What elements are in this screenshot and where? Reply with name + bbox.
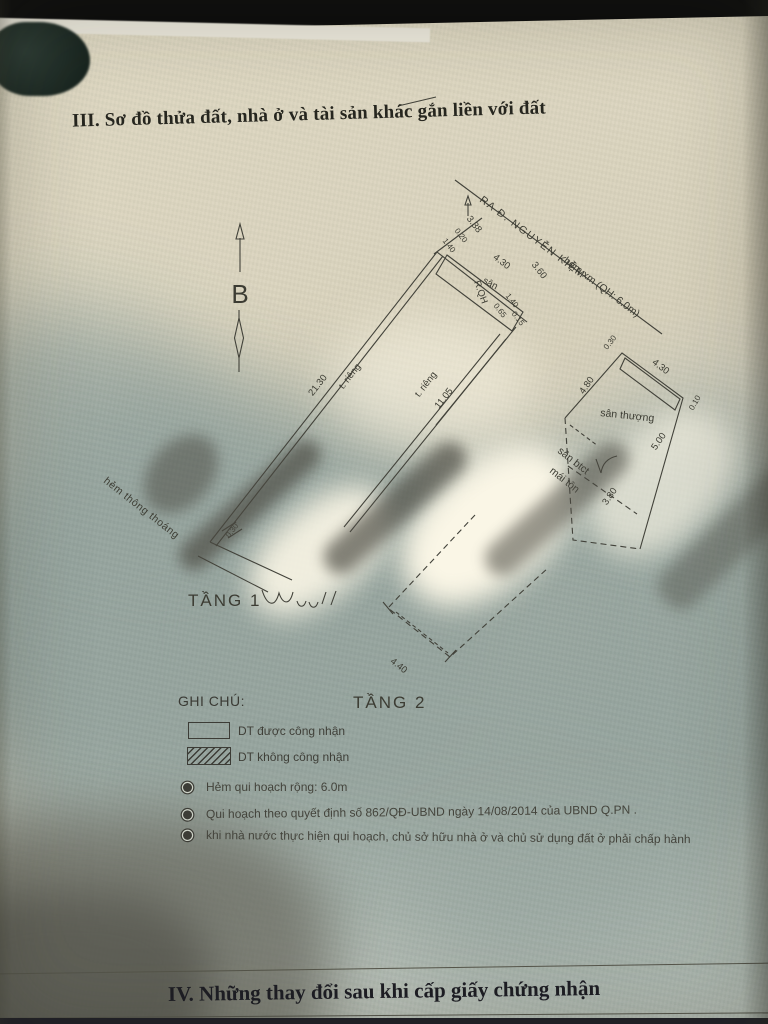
photo-bottom-edge [0,1018,768,1024]
right-side-note: t. riêng [413,370,440,400]
note-row: Hẻm qui hoạch rộng: 6.0m [183,780,347,794]
legend-label-recognized: DT được công nhận [238,724,345,738]
yard-width-dim: 4.30 [491,252,512,272]
roof-dim-top-right: 0.10 [687,393,703,411]
north-label: B [231,279,248,309]
floor2-name: TẦNG 2 [353,693,426,712]
frontage-dim-1: 1.40 [441,237,458,255]
photo-right-edge [742,0,768,1024]
legend-label-unrecognized: DT không công nhận [238,750,349,764]
photographed-land-certificate-page: B RA Đ. NGUYỄN KIỆM hẻm xm (QH: 6.0m) [0,0,768,1024]
legend-swatch-unrecognized [187,747,231,765]
left-side-note: t. riêng [337,362,364,392]
alley-label: hẻm xm (QH: 6.0m) [561,255,642,320]
bullet-icon [183,810,192,819]
note-text: Hẻm qui hoạch rộng: 6.0m [206,780,347,794]
frontage-dim-3: 3.38 [464,214,484,235]
bullet-icon [183,783,192,792]
handwritten-scribble [262,590,336,607]
legend-title: GHI CHÚ: [178,693,245,709]
north-arrow: B [231,224,248,372]
roof-dim-right: 5.00 [649,431,669,452]
photo-left-edge [0,0,12,1024]
terrace-label: sân thượng [600,407,655,425]
inner-dim-3: 0.15 [510,310,527,328]
floor2-width-dim: 4.40 [388,656,409,676]
roof-dim-top-left: 0.30 [602,333,619,351]
right-front-dim: 3.60 [529,260,549,281]
right-side-dim: 11.05 [433,386,456,411]
floor1-name: TẦNG 1 [188,591,261,610]
street-direction-arrow [465,196,471,216]
legend-swatch-recognized [188,722,230,739]
bullet-icon [183,831,192,840]
inner-dim-2: 1.40 [504,292,521,310]
roof-dim-top: 4.30 [650,357,671,377]
